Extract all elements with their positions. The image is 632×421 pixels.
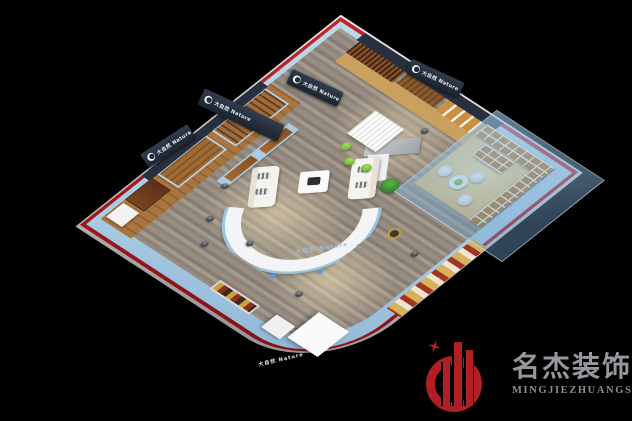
company-name-latin: MINGJIEZHUANGSHI [512,385,632,396]
nature-circle-logo-icon [411,64,422,75]
striped-pillow [355,181,369,188]
showroom-render: 大自然 Nature 大自然 Nature 大自然 Nature 大自然 Nat… [0,0,632,421]
emblem-star-icon [426,338,442,354]
mingjie-emblem-icon [424,332,500,416]
booth-plan [103,28,556,358]
striped-pillow [255,188,269,195]
table-decor [307,177,321,186]
company-wordmark: 名杰装饰 MINGJIEZHUANGSHI [512,352,632,396]
emblem-building-bar [441,362,451,406]
nature-circle-logo-icon [146,151,157,162]
front-band-brand-mark: 大自然 Nature [258,351,305,368]
company-watermark: 名杰装饰 MINGJIEZHUANGSHI [424,332,632,416]
emblem-building-bar [452,342,463,406]
coffee-table [297,170,330,194]
nature-circle-logo-icon [203,94,214,105]
emblem-building-bar [464,350,474,406]
striped-pillow [257,172,271,179]
company-name-chinese: 名杰装饰 [512,352,632,383]
nature-circle-logo-icon [292,74,303,85]
